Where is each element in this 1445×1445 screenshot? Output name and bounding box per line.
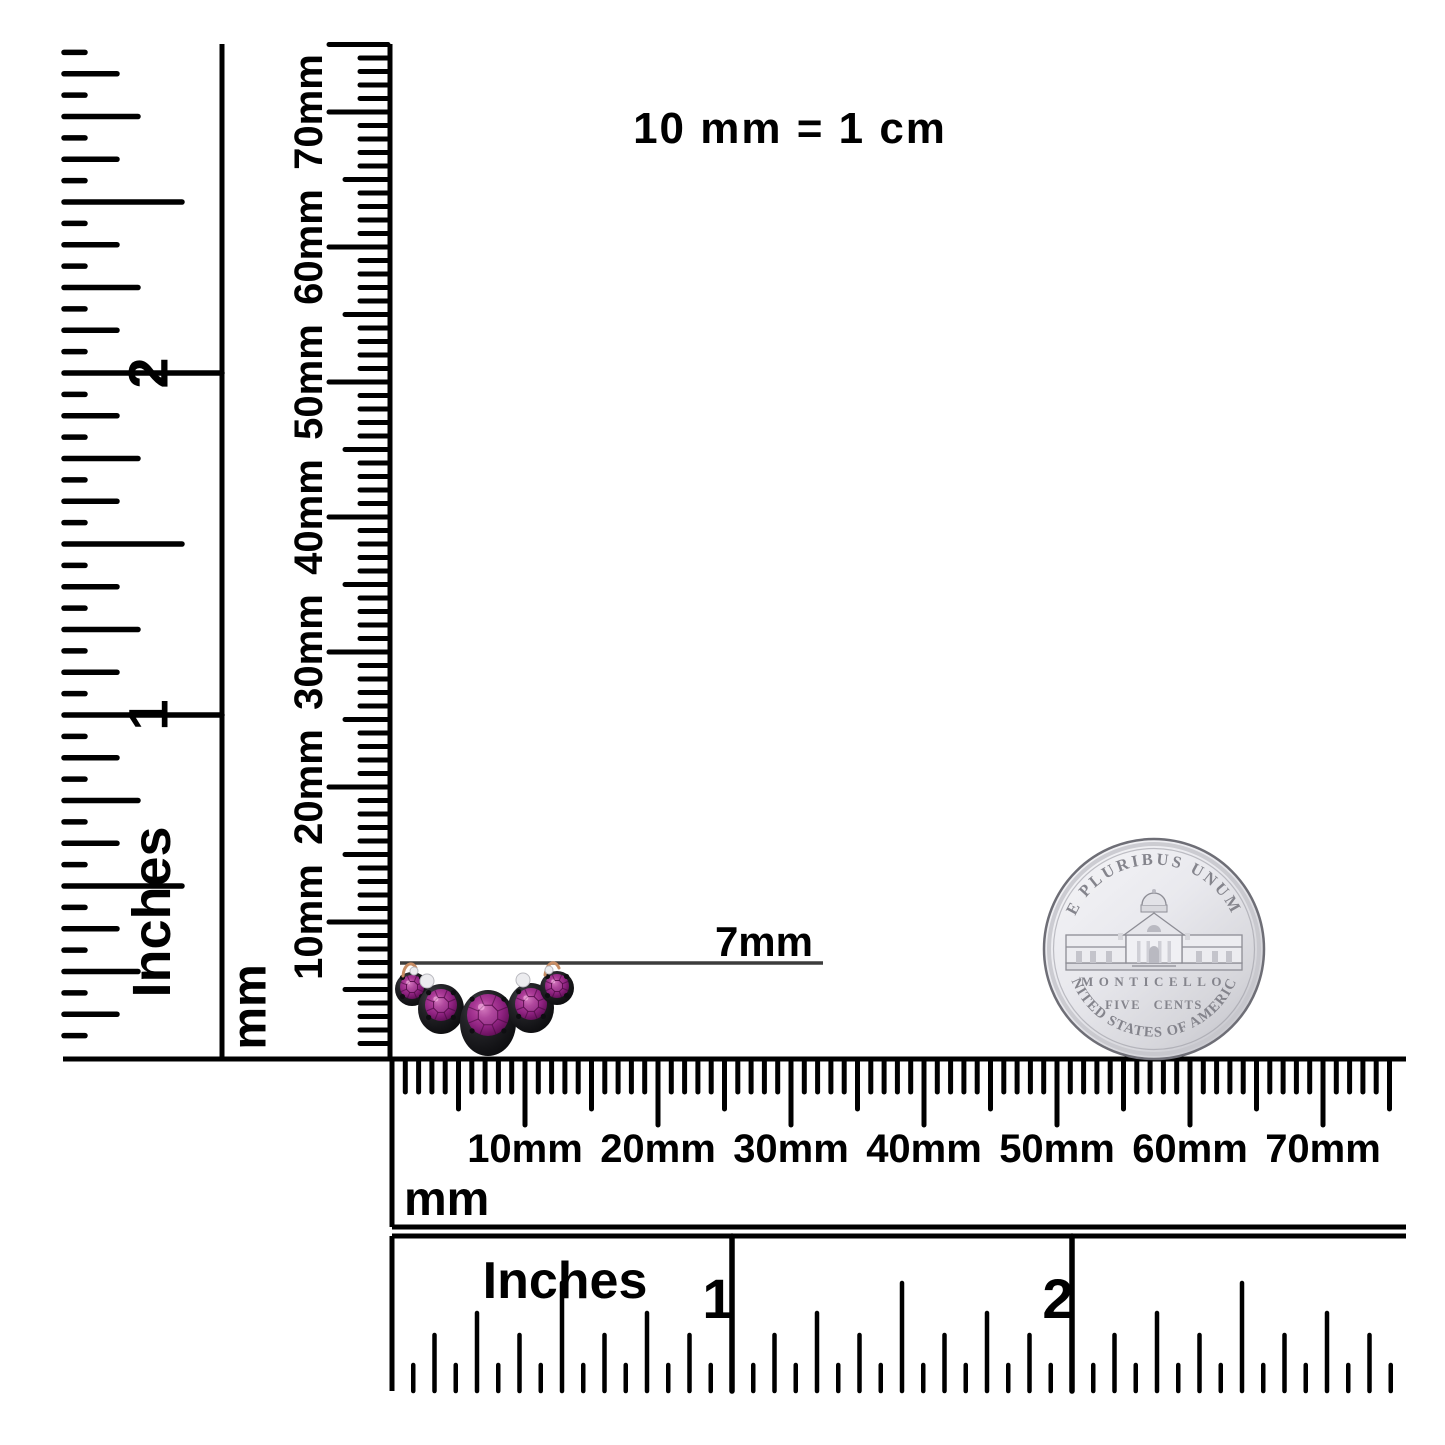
chimney — [1185, 933, 1190, 940]
left-mm-unit-label: mm — [224, 964, 277, 1049]
left-mm-ticks — [329, 45, 388, 1044]
bottom-mm-labels: 10mm20mm30mm40mm50mm60mm70mm — [467, 1127, 1381, 1171]
left-inches-numeral: 2 — [117, 357, 180, 388]
window — [1212, 951, 1218, 963]
scale-note: 10 mm = 1 cm — [633, 104, 947, 153]
bottom-mm-label: 40mm — [866, 1127, 982, 1171]
coin-monticello-label: MONTICELLO — [1081, 974, 1227, 989]
column — [1168, 941, 1172, 963]
left-mm-label: 20mm — [287, 729, 331, 845]
silver-setting-accent — [516, 973, 530, 987]
prong — [545, 993, 550, 998]
window — [1196, 951, 1202, 963]
nickel-coin: E PLURIBUS UNUM UNITED STATES OF AMERICA… — [1044, 839, 1264, 1059]
chimney — [1118, 933, 1123, 940]
left-mm-label: 50mm — [287, 324, 331, 440]
prong — [501, 996, 506, 1001]
column — [1137, 941, 1141, 963]
gemstone-sparkle — [523, 995, 528, 1000]
silver-setting-accent — [410, 967, 418, 975]
prong — [469, 1028, 474, 1033]
prong — [426, 990, 431, 995]
prong — [451, 990, 456, 995]
prong — [516, 989, 521, 994]
prong — [469, 996, 474, 1001]
bottom-mm-label: 60mm — [1132, 1127, 1248, 1171]
bottom-inches-numerals: 12 — [702, 1267, 1073, 1330]
coin-denomination: FIVE CENTS — [1105, 998, 1203, 1012]
left-inches-numeral: 1 — [117, 699, 180, 730]
entrance-door — [1149, 946, 1159, 963]
left-mm-label: 60mm — [287, 189, 331, 305]
window — [1226, 951, 1232, 963]
prong — [564, 993, 569, 998]
prong — [541, 1014, 546, 1019]
left-mm-labels: 10mm20mm30mm40mm50mm60mm70mm — [287, 54, 331, 980]
bottom-mm-ticks — [405, 1061, 1389, 1125]
silver-setting-accent — [420, 974, 434, 988]
left-inches-unit-label: Inches — [122, 826, 182, 997]
measurement-label: 7mm — [715, 918, 813, 965]
bottom-inches-numeral: 2 — [1042, 1267, 1073, 1330]
bottom-mm-label: 70mm — [1265, 1127, 1381, 1171]
gemstone-sparkle — [478, 1004, 485, 1011]
ruler-frame — [63, 44, 1406, 1391]
gemstone-sparkle — [433, 996, 438, 1001]
bottom-mm-label: 50mm — [999, 1127, 1115, 1171]
prong — [400, 994, 405, 999]
measurement-callout: 7mm — [400, 918, 823, 965]
left-mm-label: 10mm — [287, 864, 331, 980]
silver-setting-accent — [545, 966, 553, 974]
window — [1106, 951, 1112, 963]
prong — [516, 1014, 521, 1019]
scene: 12 10mm20mm30mm40mm50mm60mm70mm 10mm20mm… — [0, 0, 1445, 1445]
prong — [451, 1015, 456, 1020]
dome-finial — [1152, 889, 1156, 893]
left-mm-label: 30mm — [287, 594, 331, 710]
gemstone-sparkle — [551, 980, 555, 984]
prong — [501, 1028, 506, 1033]
window — [1090, 951, 1096, 963]
bottom-mm-label: 10mm — [467, 1127, 583, 1171]
prong — [564, 974, 569, 979]
window — [1076, 951, 1082, 963]
bottom-inches-numeral: 1 — [702, 1267, 733, 1330]
left-mm-label: 70mm — [287, 54, 331, 170]
gemstone-sparkle — [406, 981, 410, 985]
prong — [426, 1015, 431, 1020]
left-mm-label: 40mm — [287, 459, 331, 575]
bottom-mm-label: 30mm — [733, 1127, 849, 1171]
pendant — [395, 963, 574, 1056]
bottom-inches-unit-label: Inches — [483, 1252, 648, 1310]
bottom-mm-unit-label: mm — [404, 1173, 489, 1226]
dome-drum — [1141, 905, 1167, 912]
bottom-mm-label: 20mm — [600, 1127, 716, 1171]
measurement-diagram: 12 10mm20mm30mm40mm50mm60mm70mm 10mm20mm… — [0, 0, 1445, 1445]
